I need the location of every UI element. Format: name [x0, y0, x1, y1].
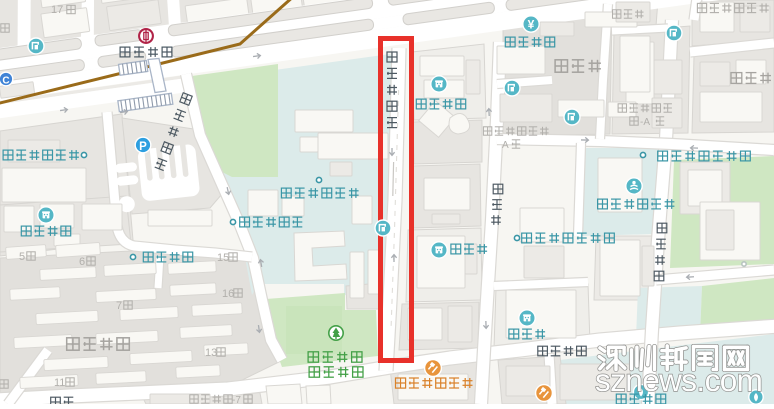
svg-text:5: 5	[19, 251, 25, 263]
svg-text:-7: -7	[232, 395, 241, 404]
svg-text:7: 7	[116, 300, 122, 312]
svg-text:C: C	[2, 75, 9, 86]
svg-text:6: 6	[79, 256, 85, 268]
svg-text:¥: ¥	[528, 18, 535, 32]
svg-text:11: 11	[54, 377, 65, 389]
svg-text:A: A	[502, 140, 509, 151]
svg-text:sznews.com: sznews.com	[595, 362, 762, 398]
svg-text:13: 13	[205, 347, 217, 359]
svg-text:15: 15	[217, 252, 229, 264]
svg-text:17: 17	[51, 4, 63, 16]
svg-text:-A: -A	[640, 117, 650, 128]
svg-text:16: 16	[222, 288, 234, 300]
svg-text:P: P	[139, 141, 147, 153]
